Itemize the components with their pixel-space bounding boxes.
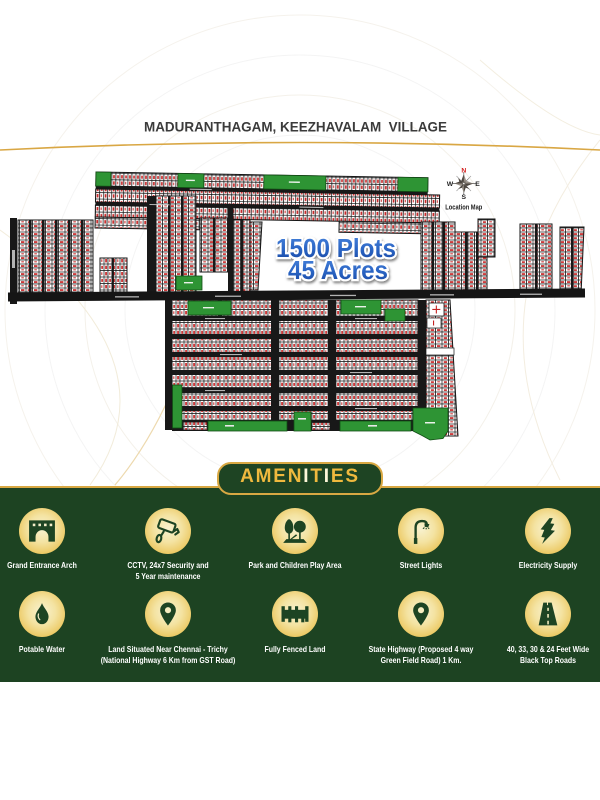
- svg-text:W: W: [447, 181, 454, 188]
- svg-text:MADURANTHAGAM, KEEZHAVALAM VI: MADURANTHAGAM, KEEZHAVALAM VILLAGE: [144, 119, 447, 135]
- svg-text:N: N: [461, 168, 466, 175]
- svg-text:S: S: [462, 194, 467, 201]
- svg-text:E: E: [475, 181, 480, 188]
- svg-text:Location Map: Location Map: [445, 205, 482, 212]
- svg-text:45 Acres: 45 Acres: [288, 255, 388, 285]
